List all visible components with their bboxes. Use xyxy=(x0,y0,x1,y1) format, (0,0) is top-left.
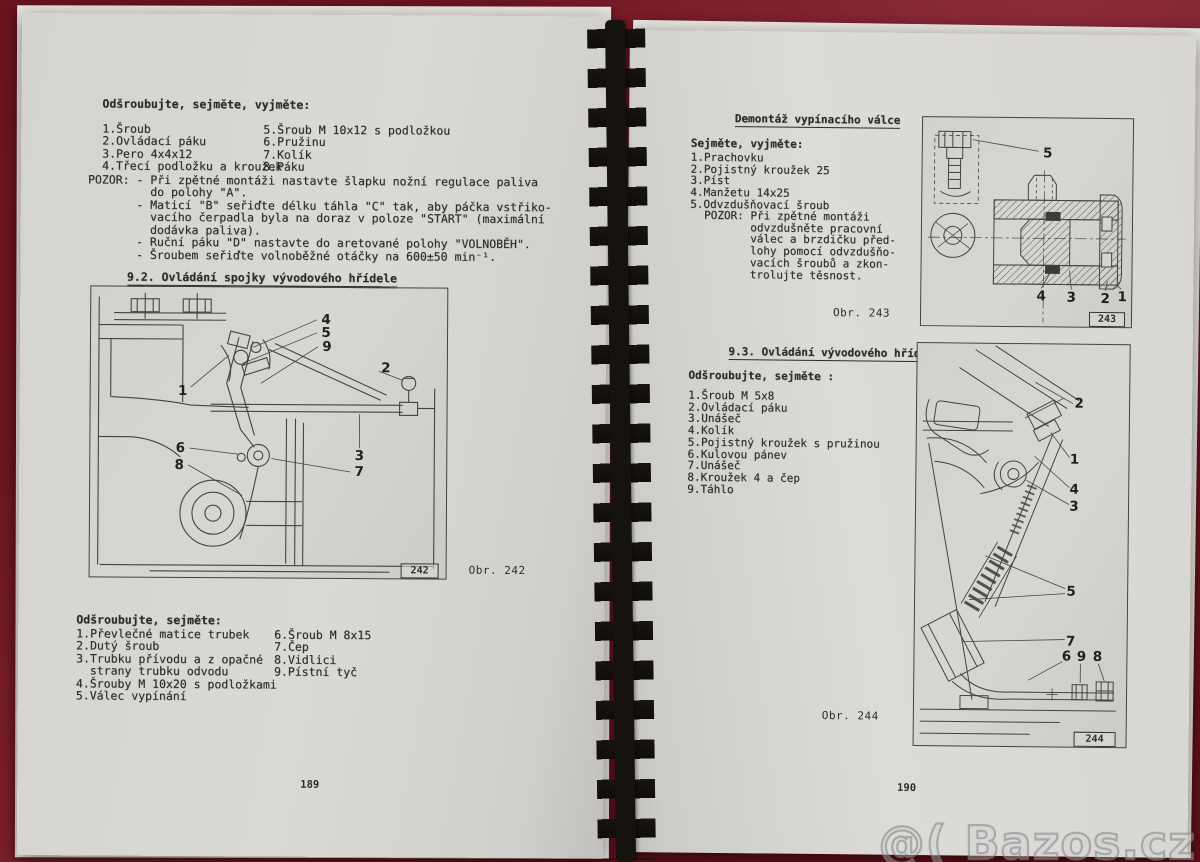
figure-callout: 1 xyxy=(178,383,188,399)
page-number-right: 190 xyxy=(897,782,916,794)
pozor-note-right: POZOR: Při zpětné montáži odvzdušněte pr… xyxy=(703,210,896,282)
section-heading-9-3: 9.3. Ovládání vývodového hřídele xyxy=(688,334,940,372)
figure-number-box: 243 xyxy=(1089,312,1125,327)
figure-242: 4 5 9 1 2 6 8 3 7 242 xyxy=(89,285,449,579)
figure-callout: 8 xyxy=(1093,649,1103,665)
top-list-col2: 5.Šroub M 10x12 s podložkou 6.Pružinu 7.… xyxy=(263,123,450,175)
figure-callout: 3 xyxy=(1069,499,1079,515)
figure-callout: 1 xyxy=(1117,289,1127,305)
top-list-col1: 1.Šroub 2.Ovládací páku 3.Pero 4x4x12 4.… xyxy=(102,122,282,173)
figure-callout: 2 xyxy=(1100,291,1110,307)
figure-callout: 1 xyxy=(1070,452,1080,468)
figure-244: 2 1 4 3 5 7 6 9 8 244 xyxy=(913,342,1131,748)
bazos-watermark: @( Bazos.cz xyxy=(879,816,1196,862)
figure-callout: 5 xyxy=(1043,145,1053,161)
figure-243-caption: Obr. 243 xyxy=(833,306,890,320)
manual-page-left: Odšroubujte, sejměte, vyjměte: 1.Šroub 2… xyxy=(17,13,608,859)
figure-callout: 4 xyxy=(1036,288,1046,304)
figure-callout: 2 xyxy=(1074,396,1084,412)
figure-244-caption: Obr. 244 xyxy=(822,709,879,723)
figure-callout: 6 xyxy=(1062,649,1072,665)
figure-callout: 5 xyxy=(1066,584,1076,600)
figure-callout: 3 xyxy=(1066,290,1076,306)
pozor-note: POZOR: - Při zpětné montáži nastavte šla… xyxy=(87,173,551,264)
bottom-list-col2: 6.Šroub M 8x15 7.Čep 8.Vidlici 9.Pístní … xyxy=(274,628,371,679)
manual-page-right: Demontáž vypínacího válce Sejměte, vyjmě… xyxy=(621,30,1196,858)
figure-242-drawing xyxy=(90,286,448,578)
figure-callout: 8 xyxy=(174,457,184,473)
figure-callout: 9 xyxy=(322,339,332,355)
figure-callout: 7 xyxy=(1066,634,1076,650)
figure-number-box: 244 xyxy=(1074,732,1116,747)
top-list-title: Odšroubujte, sejměte, vyjměte: xyxy=(102,97,310,111)
list1-title: Sejměte, vyjměte: xyxy=(691,138,804,151)
figure-callout: 2 xyxy=(381,360,391,376)
page-number-left: 189 xyxy=(300,779,319,791)
figure-callout: 4 xyxy=(1069,482,1079,498)
figure-callout: 3 xyxy=(355,448,365,464)
figure-callout: 7 xyxy=(354,464,364,480)
list2: 1.Šroub M 5x8 2.Ovládací páku 3.Unášeč 4… xyxy=(687,390,880,497)
list1: 1.Prachovku 2.Pojistný kroužek 25 3.Píst… xyxy=(690,152,830,212)
figure-callout: 9 xyxy=(1077,649,1087,665)
bottom-list-title: Odšroubujte, sejměte: xyxy=(76,613,221,626)
figure-243: 5 4 3 2 1 243 xyxy=(920,116,1134,328)
bottom-list-col1: 1.Převlečné matice trubek 2.Dutý šroub 3… xyxy=(76,627,277,704)
list2-title: Odšroubujte, sejměte : xyxy=(688,370,834,383)
figure-244-drawing xyxy=(914,343,1130,747)
figure-callout: 6 xyxy=(176,440,186,456)
figure-number-box: 242 xyxy=(401,563,439,578)
heading-demontaz: Demontáž vypínacího válce xyxy=(695,101,901,138)
photo-of-open-manual: Odšroubujte, sejměte, vyjměte: 1.Šroub 2… xyxy=(0,0,1200,862)
figure-242-caption: Obr. 242 xyxy=(469,564,526,577)
